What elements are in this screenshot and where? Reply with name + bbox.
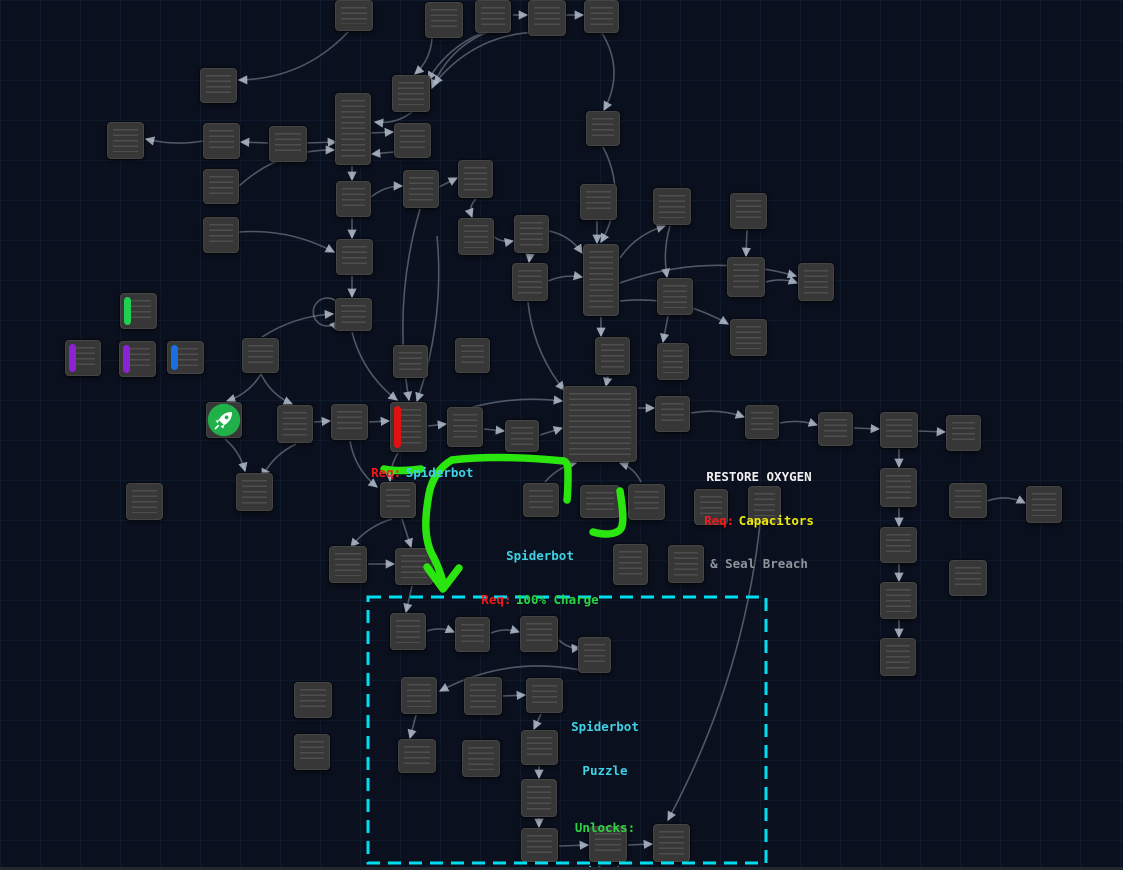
annotation-restore-oxygen: RESTORE OXYGEN Req:Capacitors & Seal Bre… <box>697 441 821 601</box>
annotation-req-spiderbot: Req:Spiderbot <box>341 451 473 495</box>
req-value: Spiderbot <box>406 465 474 480</box>
puzzle-line: Spiderbot <box>552 720 658 735</box>
annotation-spiderbot-charge: Spiderbot Req:100% Charge <box>466 520 614 636</box>
req-value: 100% Charge <box>516 592 599 607</box>
annotation-title: RESTORE OXYGEN <box>697 470 821 485</box>
graph-canvas[interactable]: RESTORE OXYGEN Req:Capacitors & Seal Bre… <box>0 0 1123 870</box>
puzzle-line: Puzzle <box>552 764 658 779</box>
annotation-note: & Seal Breach <box>697 557 821 572</box>
annotation-spiderbot-puzzle: Spiderbot Puzzle Unlocks: Spiderbot Cont… <box>552 691 658 870</box>
req-label: Req: <box>371 465 401 480</box>
req-value: Capacitors <box>739 513 814 528</box>
annotation-title: Spiderbot <box>466 549 614 564</box>
unlocks-label: Unlocks: <box>552 821 658 836</box>
req-label: Req: <box>481 592 511 607</box>
req-label: Req: <box>704 513 734 528</box>
